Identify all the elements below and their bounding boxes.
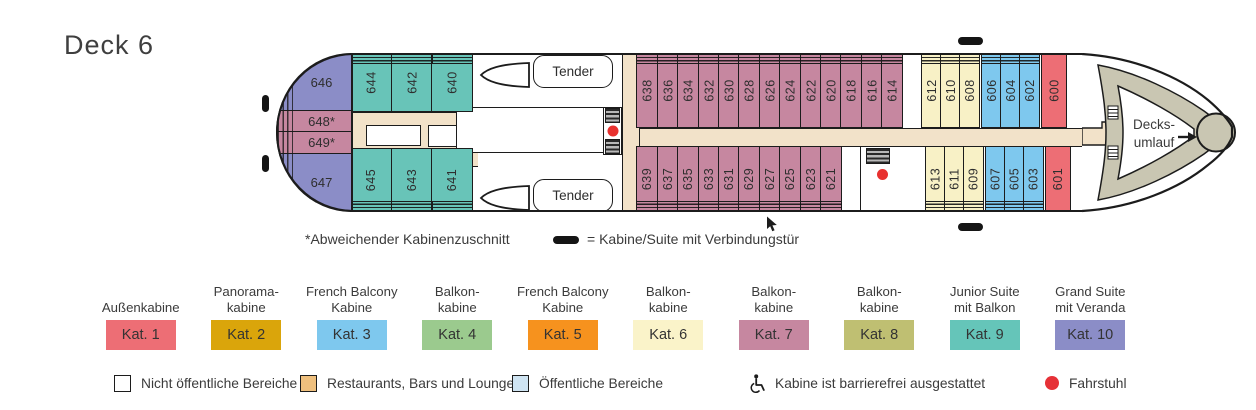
ship-deck-plan: Tender Tender 644642640 645643641 638636…	[256, 30, 1256, 235]
category-kat: Kat. 4	[438, 327, 476, 343]
category-kat: Kat. 3	[333, 327, 371, 343]
tender-label: Tender	[552, 188, 593, 203]
category-swatch: Kat. 10	[1055, 320, 1125, 350]
cabin: 640	[431, 53, 473, 112]
public-swatch	[512, 375, 529, 392]
legend-item: Grand Suite mit Veranda Kat. 10	[1038, 281, 1144, 350]
connecting-door-marker	[262, 155, 269, 172]
category-label: Balkon- kabine	[616, 281, 722, 315]
bow-label-line2: umlauf	[1134, 135, 1175, 150]
legend-label: Restaurants, Bars und Lounges	[327, 376, 521, 391]
legend-item: Balkon- kabine Kat. 6	[616, 281, 722, 350]
category-kat: Kat. 7	[755, 327, 793, 343]
legend-item: Außenkabine Kat. 1	[88, 281, 194, 350]
deck-plan-page: Deck 6 Tender	[0, 0, 1256, 410]
cabin-number: 601	[1026, 167, 1090, 191]
category-label: Balkon- kabine	[827, 281, 933, 315]
cabin-number: 649*	[308, 135, 335, 150]
lifeboat-bow-icon	[479, 184, 531, 212]
cabin-number: 647	[311, 175, 333, 190]
legend-accessible: Kabine ist barrierefrei ausgestattet	[750, 373, 985, 393]
legend-label: Öffentliche Bereiche	[539, 376, 663, 391]
service-room	[366, 125, 421, 146]
legend-restaurants: Restaurants, Bars und Lounges	[300, 373, 521, 393]
page-title: Deck 6	[64, 30, 154, 61]
elevator-dot-swatch	[1045, 376, 1059, 390]
category-kat: Kat. 8	[860, 327, 898, 343]
tender-boat: Tender	[533, 179, 613, 212]
category-kat: Kat. 10	[1067, 327, 1113, 343]
stairs-icon	[605, 108, 620, 123]
category-kat: Kat. 6	[649, 327, 687, 343]
legend-item: French Balcony Kabine Kat. 5	[510, 281, 616, 350]
category-swatch: Kat. 1	[106, 320, 176, 350]
category-label: Panorama- kabine	[194, 281, 300, 315]
category-swatch: Kat. 9	[950, 320, 1020, 350]
note-connecting-door: = Kabine/Suite mit Verbindungstür	[587, 231, 799, 247]
non-public-swatch	[114, 375, 131, 392]
tender-label: Tender	[552, 64, 593, 79]
restaurants-swatch	[300, 375, 317, 392]
category-kat: Kat. 2	[227, 327, 265, 343]
legend-item: French Balcony Kabine Kat. 3	[299, 281, 405, 350]
legend-item: Junior Suite mit Balkon Kat. 9	[932, 281, 1038, 350]
cabin: 646	[278, 55, 351, 110]
legend-elevator: Fahrstuhl	[1045, 373, 1127, 393]
cabin-group-bottom-red: 601	[1047, 146, 1071, 212]
cabin-group-bottom-mauve: 639637635633631629627625623621	[638, 146, 842, 212]
category-swatch: Kat. 2	[211, 320, 281, 350]
cabin: 621	[820, 146, 842, 212]
bow-label-line1: Decks-	[1133, 117, 1175, 132]
category-label: Außenkabine	[88, 281, 194, 315]
category-swatch: Kat. 5	[528, 320, 598, 350]
legend-label: Kabine ist barrierefrei ausgestattet	[775, 376, 985, 391]
legend-public: Öffentliche Bereiche	[512, 373, 663, 393]
category-kat: Kat. 1	[122, 327, 160, 343]
connecting-door-icon	[553, 236, 579, 244]
note-cabin-layout: *Abweichender Kabinenzuschnitt	[305, 231, 510, 247]
stairs-icon	[605, 139, 620, 154]
stairs-and-elevator-mid	[603, 107, 622, 155]
category-kat: Kat. 5	[544, 327, 582, 343]
corridor-main	[622, 128, 1082, 147]
legend-label: Fahrstuhl	[1069, 376, 1127, 391]
category-label: French Balcony Kabine	[299, 281, 405, 315]
elevator-dot	[877, 169, 888, 180]
category-label: Balkon- kabine	[405, 281, 511, 315]
cabin-group-top-teal: 644642640	[352, 53, 473, 112]
category-label: Grand Suite mit Veranda	[1038, 281, 1144, 315]
bow-platform-circle	[1197, 114, 1235, 152]
category-swatch: Kat. 4	[422, 320, 492, 350]
connecting-door-marker	[262, 95, 269, 112]
cabin: 649*	[278, 131, 351, 154]
cabin-number: 621	[799, 169, 863, 189]
cabin-group-top-mauve: 638636634632630628626624622620618616614	[638, 53, 903, 128]
central-service-block	[456, 107, 604, 153]
cabin: 600	[1041, 53, 1067, 128]
category-label: French Balcony Kabine	[510, 281, 616, 315]
bow-section: Decks- umlauf	[1082, 53, 1242, 213]
cabin-number: 648*	[308, 114, 335, 129]
tender-boat: Tender	[533, 55, 613, 88]
legend-non-public: Nicht öffentliche Bereiche	[114, 373, 297, 393]
category-swatch: Kat. 3	[317, 320, 387, 350]
stairs-icon	[866, 148, 890, 164]
category-swatch: Kat. 7	[739, 320, 809, 350]
category-label: Balkon- kabine	[721, 281, 827, 315]
cabin: 601	[1045, 146, 1071, 212]
legend-item: Balkon- kabine Kat. 4	[405, 281, 511, 350]
cabin: 641	[431, 148, 473, 212]
cabin-group-bottom-teal: 645643641	[352, 148, 473, 212]
cabin: 648*	[278, 110, 351, 131]
category-swatch: Kat. 8	[844, 320, 914, 350]
stern-cabin-block: 646 648* 649* 647	[276, 53, 353, 212]
category-label: Junior Suite mit Balkon	[932, 281, 1038, 315]
connecting-door-marker	[958, 37, 983, 45]
connecting-door-marker	[958, 223, 983, 231]
service-block-arm	[428, 125, 458, 147]
legend-item: Balkon- kabine Kat. 7	[721, 281, 827, 350]
elevator-dot	[607, 126, 618, 137]
mouse-cursor-icon	[765, 216, 779, 233]
cabin-number: 640	[424, 63, 481, 103]
category-legend: Außenkabine Kat. 1 Panorama- kabine Kat.…	[88, 281, 1143, 350]
category-swatch: Kat. 6	[633, 320, 703, 350]
category-kat: Kat. 9	[966, 327, 1004, 343]
cabin-number: 600	[1018, 79, 1091, 103]
cabin-number: 641	[421, 160, 483, 200]
legend-item: Balkon- kabine Kat. 8	[827, 281, 933, 350]
lifeboat-bow-icon	[479, 61, 531, 89]
cabin-group-top-red: 600	[1043, 53, 1067, 128]
cabin: 647	[278, 154, 351, 210]
legend-label: Nicht öffentliche Bereiche	[141, 376, 297, 391]
cabin-number: 646	[311, 75, 333, 90]
wheelchair-icon	[750, 374, 766, 393]
legend-item: Panorama- kabine Kat. 2	[194, 281, 300, 350]
